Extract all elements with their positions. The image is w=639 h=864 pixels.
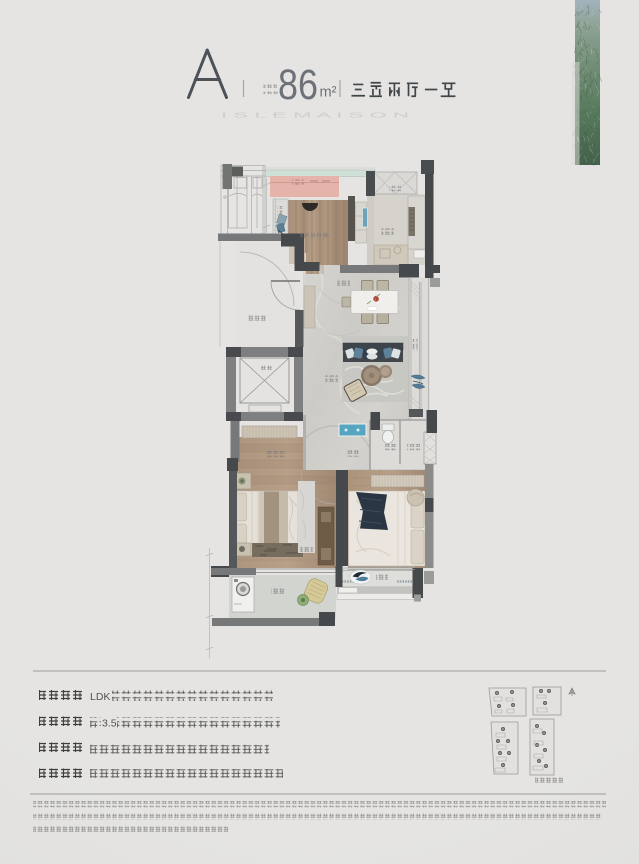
- svg-text:LDK: LDK: [90, 691, 110, 703]
- svg-text:86: 86: [278, 61, 318, 109]
- svg-text:m²: m²: [320, 84, 337, 101]
- svg-text:I S L E M A I S O N: I S L E M A I S O N: [221, 113, 409, 120]
- svg-text:3.5: 3.5: [102, 718, 117, 730]
